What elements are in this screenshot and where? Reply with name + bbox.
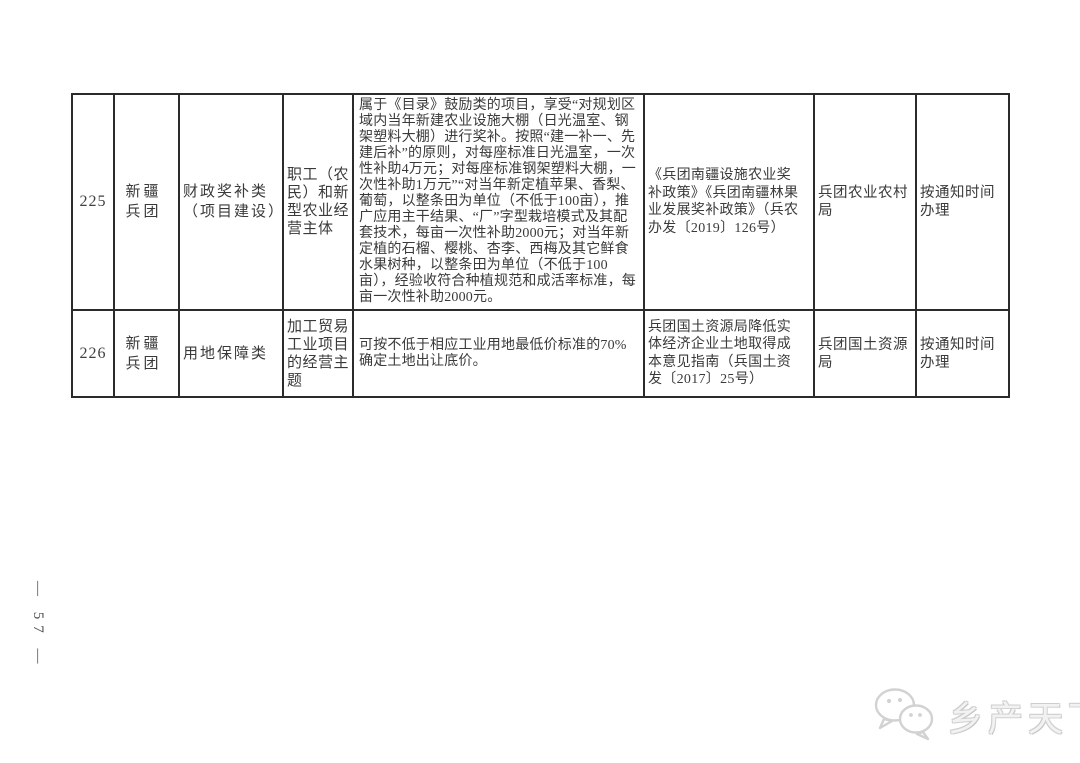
- region-label: 新疆兵团: [126, 334, 168, 374]
- category-label: 用地保障类: [183, 344, 283, 364]
- page-number: — 57 —: [29, 581, 46, 670]
- serial-number: 225: [80, 193, 107, 210]
- department-text: 兵团农业农村局: [818, 184, 908, 220]
- document-page: 225 新疆兵团 财政奖补类（项目建设） 职工（农民）和新型农业经营主体 属于《…: [0, 0, 1080, 763]
- cell-policy-document: 兵团国土资源局降低实体经济企业土地取得成本意见指南（兵国土资发〔2017〕25号…: [644, 310, 814, 397]
- brand-watermark: 乡产天下: [872, 686, 1080, 747]
- policy-document-text: 《兵团南疆设施农业奖补政策》《兵团南疆林果业发展奖补政策》（兵农办发〔2019〕…: [648, 167, 800, 237]
- cell-policy-document: 《兵团南疆设施农业奖补政策》《兵团南疆林果业发展奖补政策》（兵农办发〔2019〕…: [644, 94, 814, 310]
- cell-policy-content: 可按不低于相应工业用地最低价标准的70%确定土地出让底价。: [353, 310, 644, 397]
- region-label: 新疆兵团: [126, 182, 168, 222]
- beneficiary-text: 加工贸易工业项目的经营主题: [287, 318, 349, 390]
- cell-policy-content: 属于《目录》鼓励类的项目，享受“对规划区域内当年新建农业设施大棚（日光温室、钢架…: [353, 94, 644, 310]
- cell-schedule: 按通知时间办理: [916, 94, 1009, 310]
- cell-region: 新疆兵团: [114, 310, 179, 397]
- cell-beneficiary: 加工贸易工业项目的经营主题: [283, 310, 353, 397]
- cell-category: 用地保障类: [179, 310, 283, 397]
- cell-department: 兵团农业农村局: [814, 94, 916, 310]
- brand-name: 乡产天下: [948, 691, 1080, 742]
- cell-serial-number: 226: [72, 310, 114, 397]
- wechat-chat-bubbles-icon: [872, 686, 938, 747]
- cell-category: 财政奖补类（项目建设）: [179, 94, 283, 310]
- schedule-text: 按通知时间办理: [920, 336, 1000, 372]
- table-row: 226 新疆兵团 用地保障类 加工贸易工业项目的经营主题 可按不低于相应工业用地…: [72, 310, 1009, 397]
- beneficiary-text: 职工（农民）和新型农业经营主体: [287, 166, 349, 238]
- policy-table: 225 新疆兵团 财政奖补类（项目建设） 职工（农民）和新型农业经营主体 属于《…: [71, 93, 1010, 398]
- category-label: 财政奖补类（项目建设）: [183, 182, 283, 222]
- cell-region: 新疆兵团: [114, 94, 179, 310]
- table-row: 225 新疆兵团 财政奖补类（项目建设） 职工（农民）和新型农业经营主体 属于《…: [72, 94, 1009, 310]
- cell-beneficiary: 职工（农民）和新型农业经营主体: [283, 94, 353, 310]
- department-text: 兵团国土资源局: [818, 336, 908, 372]
- serial-number: 226: [80, 345, 107, 362]
- schedule-text: 按通知时间办理: [920, 184, 1000, 220]
- cell-schedule: 按通知时间办理: [916, 310, 1009, 397]
- policy-document-text: 兵团国土资源局降低实体经济企业土地取得成本意见指南（兵国土资发〔2017〕25号…: [648, 319, 800, 389]
- cell-serial-number: 225: [72, 94, 114, 310]
- cell-department: 兵团国土资源局: [814, 310, 916, 397]
